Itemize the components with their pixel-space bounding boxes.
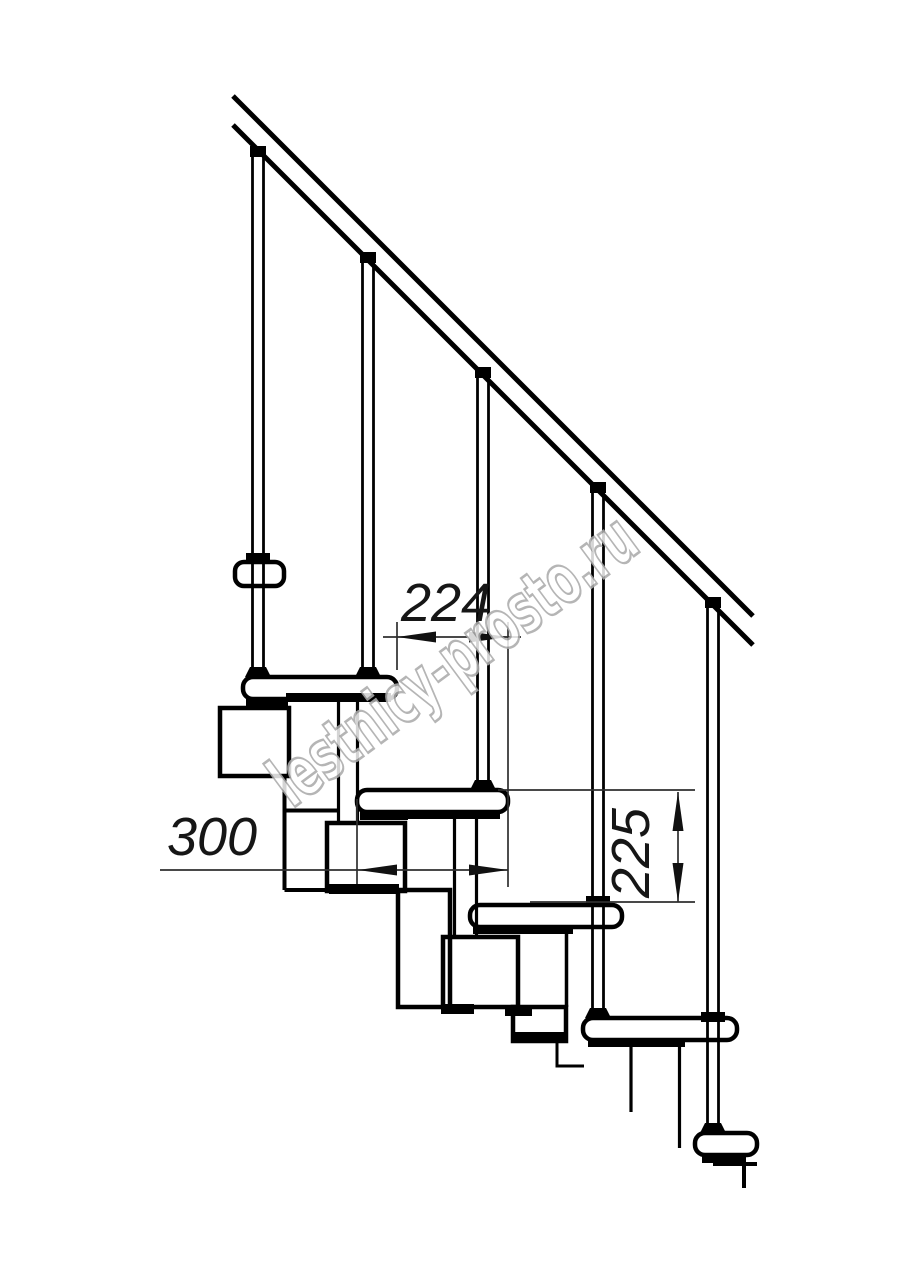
handrail-top-line <box>233 96 753 616</box>
plate-5 <box>588 1038 685 1047</box>
arrow-224-left <box>397 632 436 643</box>
dimension-labels: 224 300 225 <box>167 573 661 899</box>
arrow-300-right <box>469 865 508 876</box>
plate-2b <box>286 693 391 702</box>
tread-4 <box>470 905 622 927</box>
dimension-module-label: 300 <box>167 807 257 867</box>
module-box-4 <box>443 937 518 1007</box>
baluster-5-cap <box>705 597 721 608</box>
tread-6 <box>695 1133 757 1155</box>
tread-plates <box>246 693 746 1163</box>
arrow-225-up <box>673 792 684 831</box>
plate-2a <box>246 697 288 708</box>
baluster-3-foot <box>470 780 496 790</box>
plate-3a <box>360 810 408 820</box>
arrow-225-down <box>673 863 684 902</box>
drawing-linework: 224 300 225 <box>0 0 914 1280</box>
tread-1 <box>235 562 284 586</box>
bottom-tail <box>713 1164 757 1188</box>
plate-4 <box>473 925 573 934</box>
baluster-2 <box>355 252 381 677</box>
baluster-5-collar <box>701 1012 725 1022</box>
arrow-300-left <box>358 865 397 876</box>
module-box-3-flange <box>329 884 399 894</box>
upper-beam <box>220 708 289 776</box>
plate-3b <box>406 811 500 819</box>
baluster-5 <box>700 597 726 1133</box>
module-box-3 <box>327 823 405 891</box>
staircase-technical-drawing: 224 300 225 lestnicy-prosto.ru <box>0 0 914 1280</box>
module-box-4-flange-left <box>441 1004 474 1014</box>
dimension-going-label: 224 <box>400 573 491 633</box>
tread-3 <box>357 790 508 812</box>
baluster-1-foot <box>245 667 271 677</box>
baluster-3-cap <box>475 367 491 378</box>
baluster-1-cap <box>250 146 266 157</box>
baluster-1-collar <box>246 553 270 563</box>
handrail <box>233 96 753 645</box>
baluster-2-cap <box>360 252 376 263</box>
baluster-2-foot <box>355 667 381 677</box>
plate-6 <box>702 1154 746 1163</box>
drop-box-4-tail <box>557 1041 584 1066</box>
baluster-1 <box>245 146 271 677</box>
baluster-5-foot <box>700 1123 726 1133</box>
dimension-riser-label: 225 <box>601 807 661 899</box>
baluster-4 <box>585 482 611 1018</box>
handrail-bottom-line <box>233 125 753 645</box>
baluster-4-foot <box>585 1008 611 1018</box>
baluster-4-cap <box>590 482 606 493</box>
